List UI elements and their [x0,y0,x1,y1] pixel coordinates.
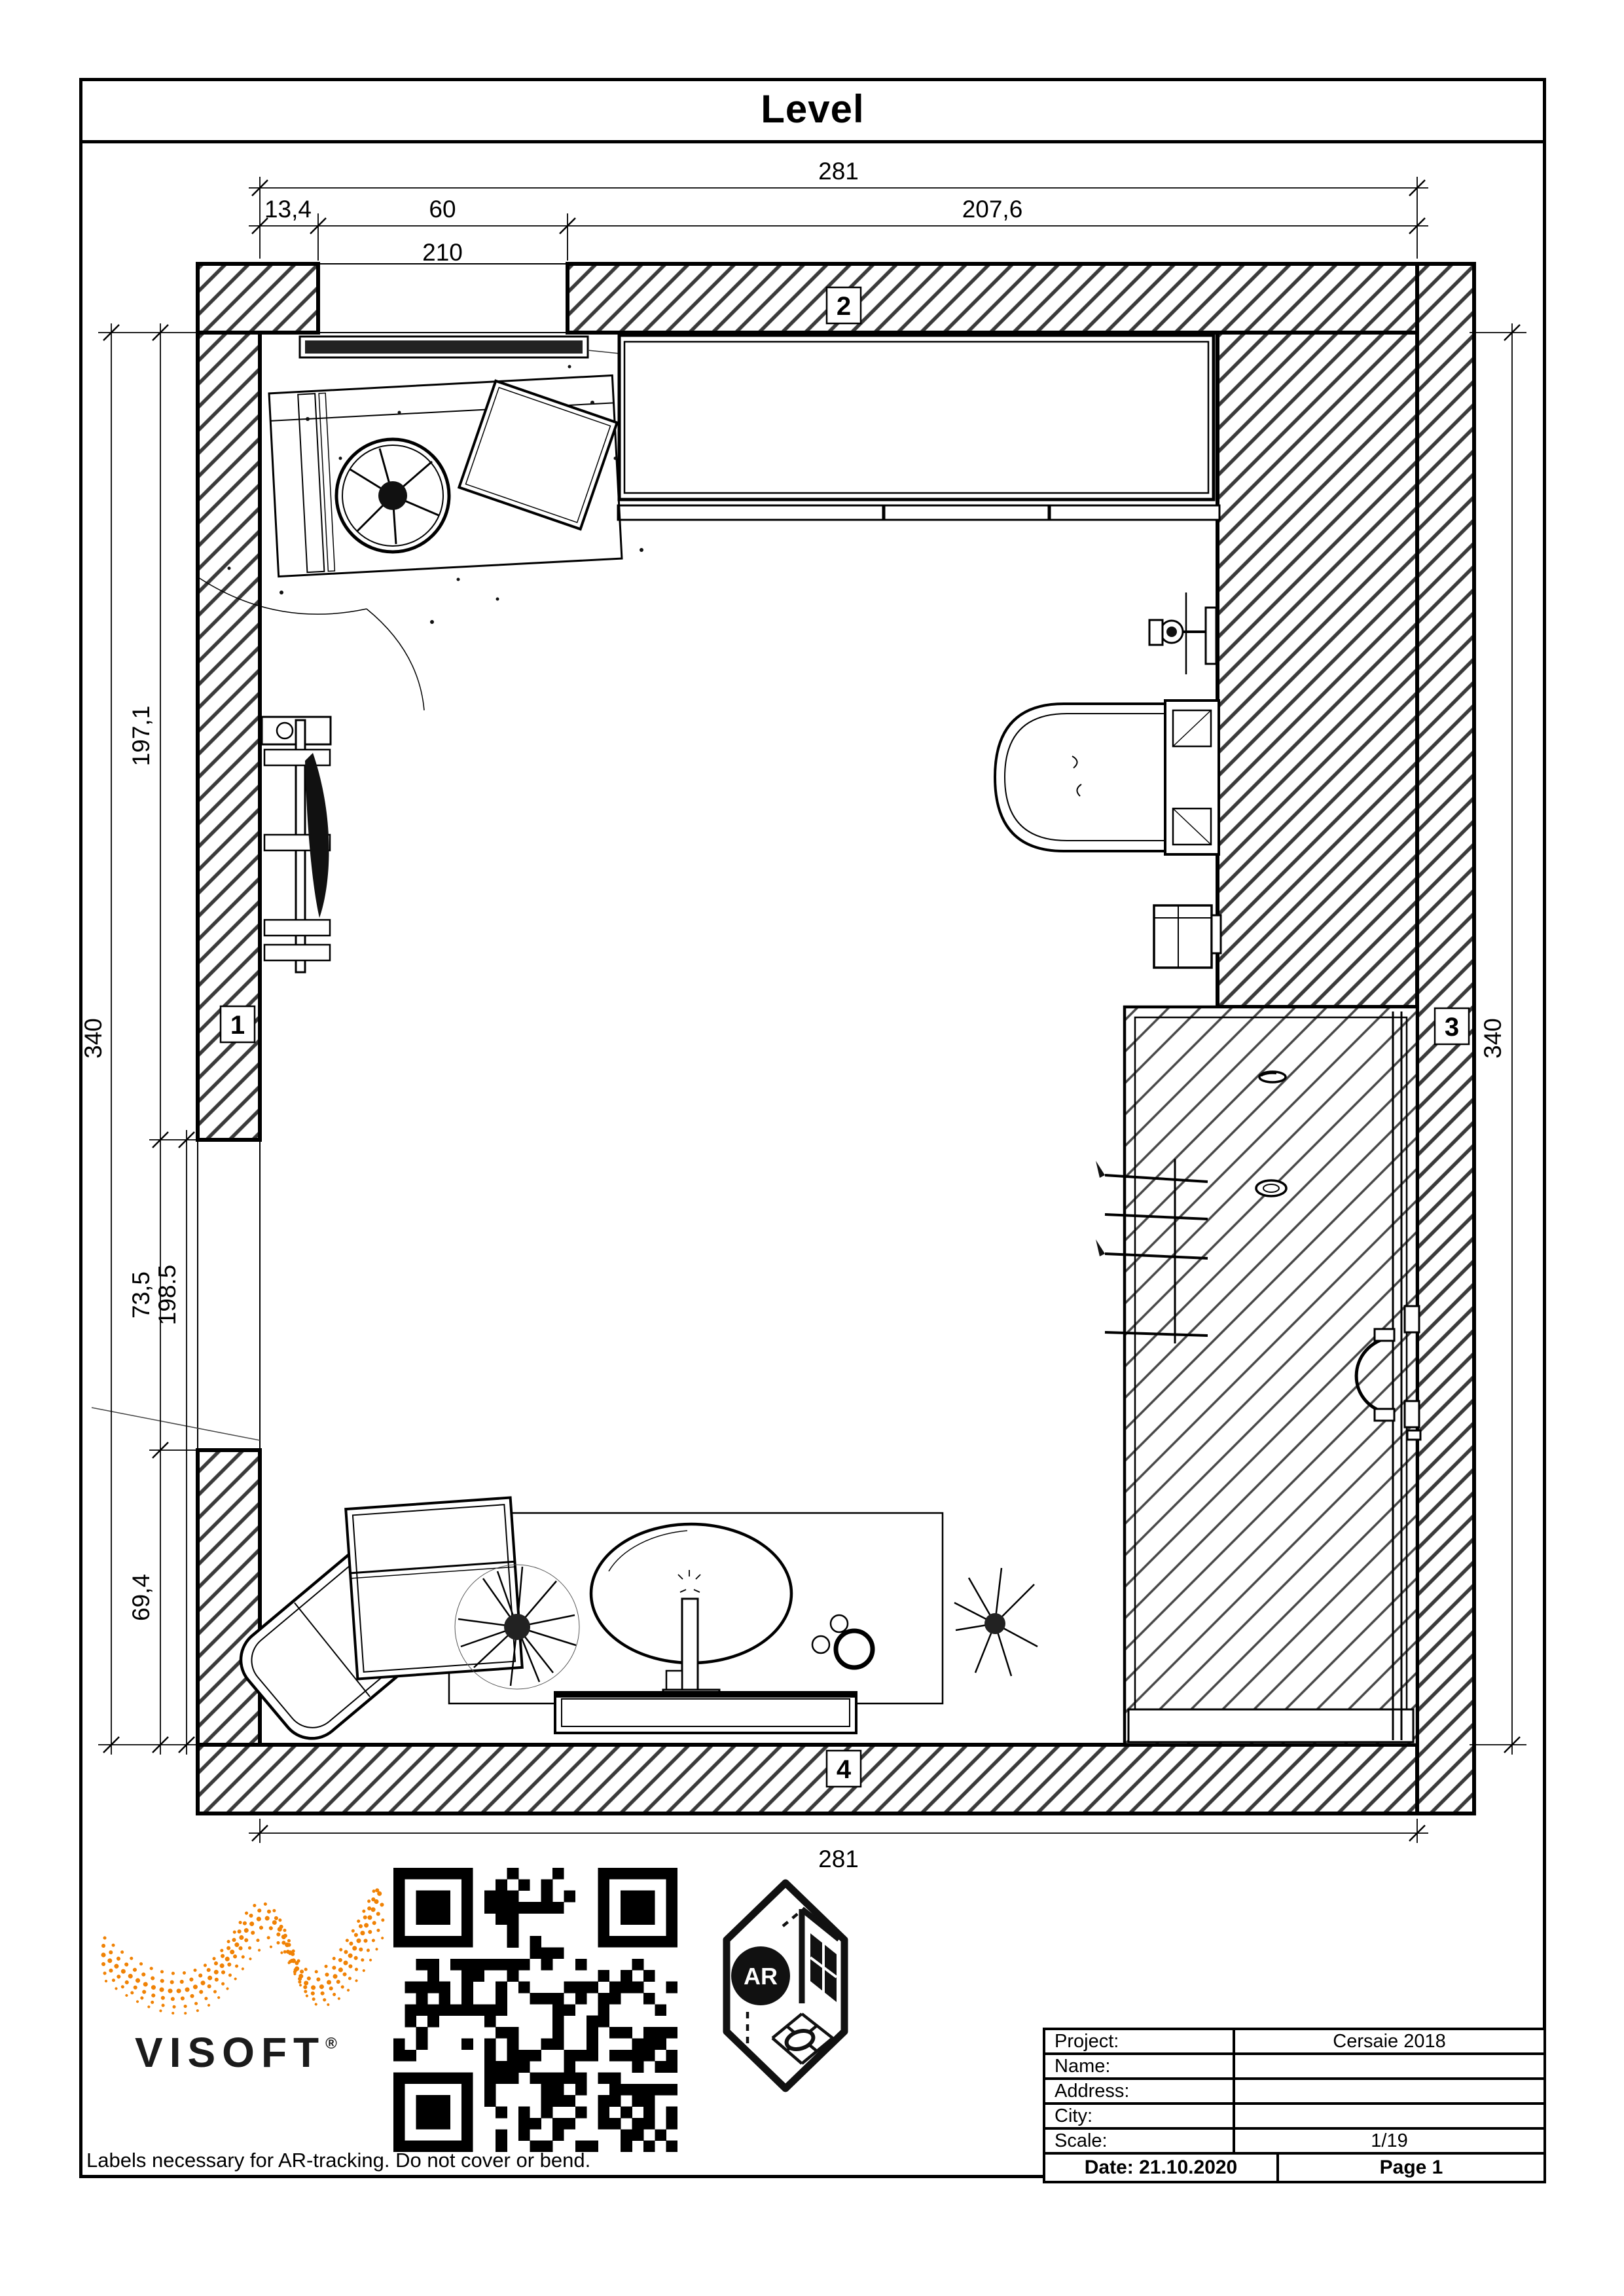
visoft-wordmark: VISOFT® [135,2028,337,2077]
bench-top-left [196,365,643,711]
shower-step [1128,1709,1413,1742]
bench [555,1692,856,1733]
table-row-scale: Scale: 1/19 [1045,2130,1543,2155]
accessories [812,1615,873,1667]
wall-top-left-stub [198,264,318,333]
project-value: Cersaie 2018 [1235,2030,1543,2052]
visoft-wave-logo [98,1878,386,2048]
dim-top-seg2: 60 [429,196,456,223]
table-row-city: City: [1045,2105,1543,2130]
name-value [1235,2055,1543,2077]
toilet-prewall [1218,333,1417,1007]
shower [1096,1007,1420,1745]
table-row-name: Name: [1045,2055,1543,2080]
ar-badge: AR [720,1878,851,2094]
table-row-address: Address: [1045,2080,1543,2105]
wall-bottom [198,1745,1417,1813]
date-value: Date: 21.10.2020 [1045,2155,1279,2181]
dim-top-seg1: 13,4 [264,196,312,223]
flush-valve [1149,592,1216,674]
dim-left-seg3: 69,4 [128,1574,154,1621]
page-number: Page 1 [1279,2155,1543,2181]
city-label: City: [1045,2105,1235,2127]
sheet: Level [0,0,1624,2296]
dim-top-seg3: 207,6 [962,196,1023,223]
shelf-unit [346,1498,522,1679]
paper-holder [1154,905,1221,968]
towel-radiator [262,717,331,972]
vanity-area [228,1496,1038,1751]
dim-left-extra: 198.5 [154,1265,181,1326]
dim-top-overall: 281 [818,158,859,185]
title-block-table: Project: Cersaie 2018 Name: Address: Cit… [1043,2028,1546,2183]
visoft-wordmark-text: VISOFT [135,2029,325,2076]
marker-4-label: 4 [837,1755,852,1784]
dim-top-below: 210 [422,239,463,266]
dim-bottom-overall: 281 [818,1846,859,1872]
scale-label: Scale: [1045,2130,1235,2152]
dim-left-outer: 340 [80,1018,107,1059]
marker-2-label: 2 [837,292,851,321]
marker-1: 1 [221,1006,255,1042]
registered-mark: ® [325,2035,337,2052]
wall-left-lower [198,1450,260,1745]
table-row-project: Project: Cersaie 2018 [1045,2030,1543,2055]
scale-value: 1/19 [1235,2130,1543,2152]
marker-1-label: 1 [230,1011,245,1040]
address-value [1235,2080,1543,2102]
round-plant [336,439,449,552]
city-value [1235,2105,1543,2127]
dim-left-seg1: 197,1 [128,706,154,767]
ar-tracking-note: Labels necessary for AR-tracking. Do not… [86,2149,590,2172]
marker-2: 2 [827,287,861,323]
wall-top [568,264,1417,333]
marker-4: 4 [827,1751,861,1787]
marker-3-label: 3 [1445,1013,1459,1042]
table-row-date-page: Date: 21.10.2020 Page 1 [1045,2155,1543,2181]
qr-code [393,1868,677,2152]
address-label: Address: [1045,2080,1235,2102]
ar-circle-label: AR [744,1963,778,1990]
toilet [995,701,1219,854]
name-label: Name: [1045,2055,1235,2077]
plant-right [954,1568,1038,1676]
mirror-cabinet [618,335,1219,520]
dim-left-seg2: 73,5 [128,1271,154,1319]
project-label: Project: [1045,2030,1235,2052]
marker-3: 3 [1435,1008,1469,1044]
dim-right-outer: 340 [1479,1018,1506,1059]
